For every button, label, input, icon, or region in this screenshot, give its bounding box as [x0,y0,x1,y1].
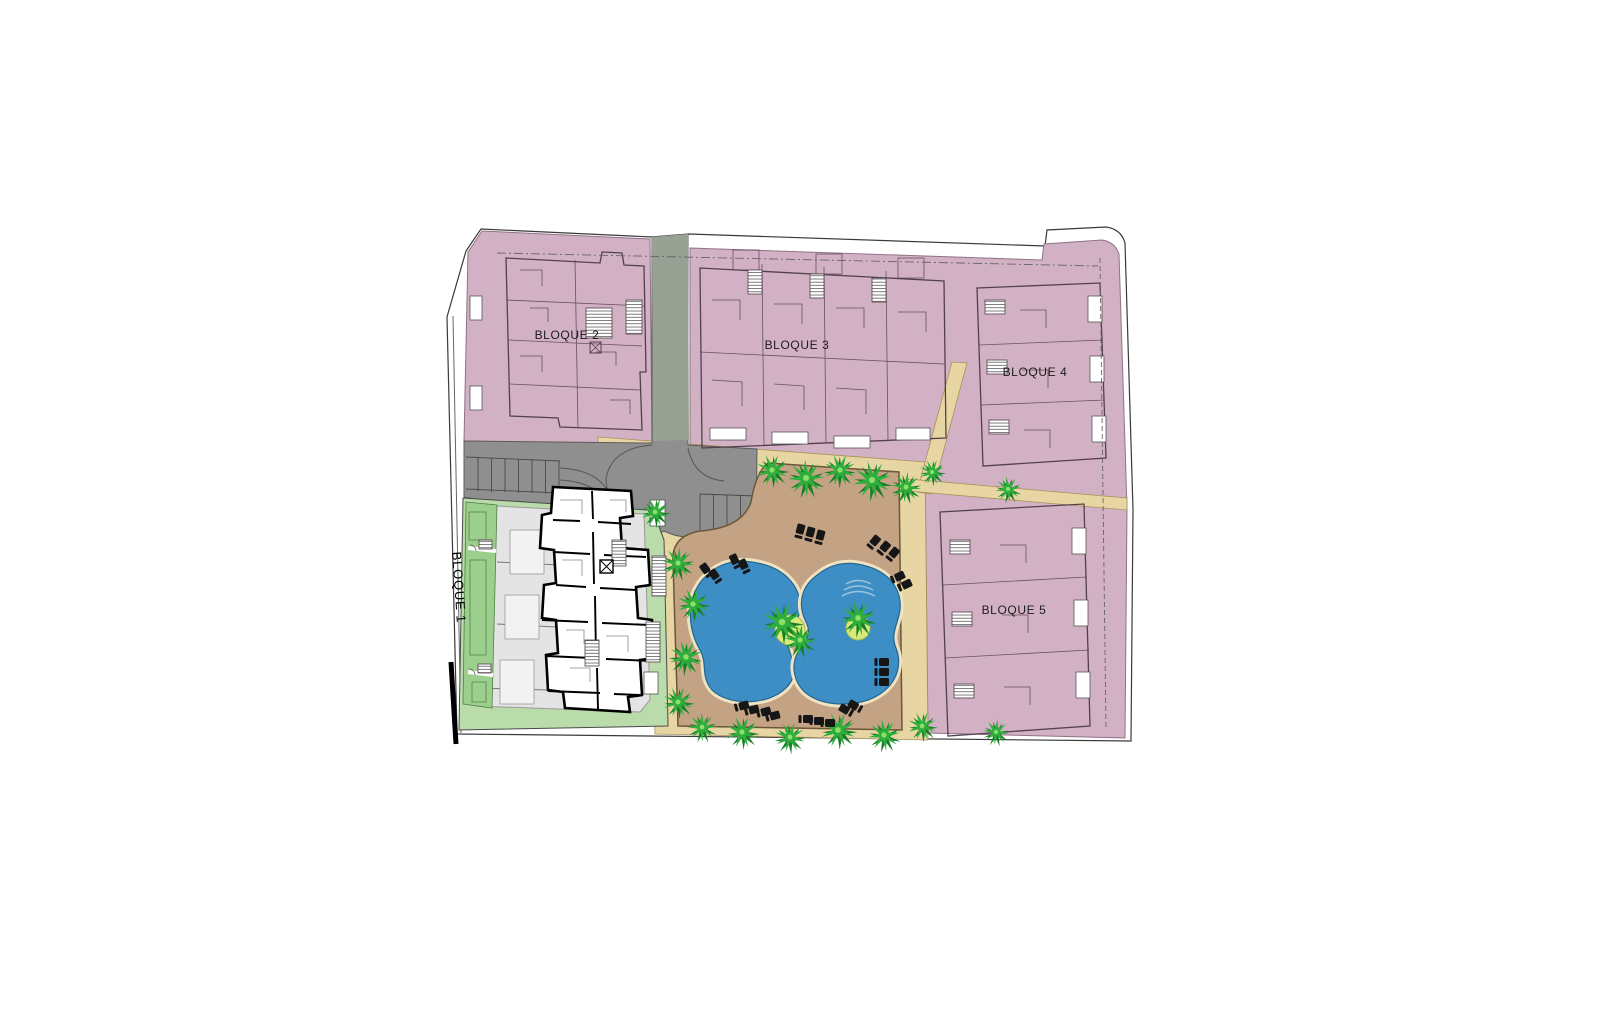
stair-hatch-icon [478,664,491,673]
bloque2-label: BLOQUE 2 [535,328,600,342]
road-north-strip [652,234,689,441]
site-plan-drawing: BLOQUE 1 BLOQUE 2 BLOQUE 3 BLOQUE 4 BLOQ… [0,0,1600,1024]
bloque4-label: BLOQUE 4 [1003,365,1068,379]
bloque3-label: BLOQUE 3 [765,338,830,352]
site-plan-page: BLOQUE 1 BLOQUE 2 BLOQUE 3 BLOQUE 4 BLOQ… [0,0,1600,1024]
elevator-x-icon [600,560,613,573]
stair-hatch-icon [479,540,492,549]
bloque5-label: BLOQUE 5 [982,603,1047,617]
